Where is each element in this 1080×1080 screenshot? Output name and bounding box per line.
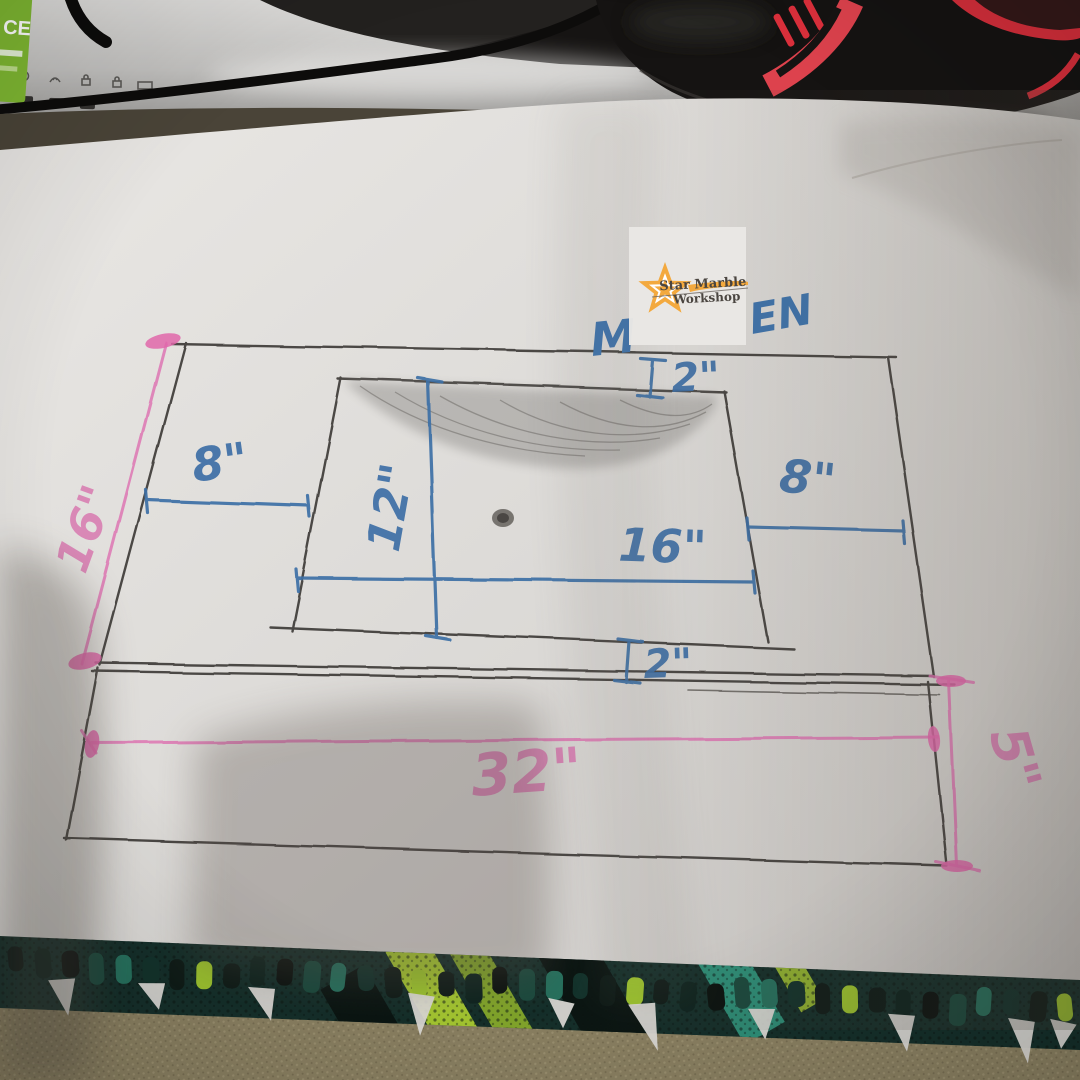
watermark: Star Marble Workshop xyxy=(629,227,748,345)
camera-shadows xyxy=(0,0,1080,1080)
photo-canvas: CE xyxy=(0,0,1080,1080)
vignette xyxy=(0,0,1080,1080)
photo-of-hand-drawn-countertop-sketch: CE xyxy=(0,0,1080,1080)
